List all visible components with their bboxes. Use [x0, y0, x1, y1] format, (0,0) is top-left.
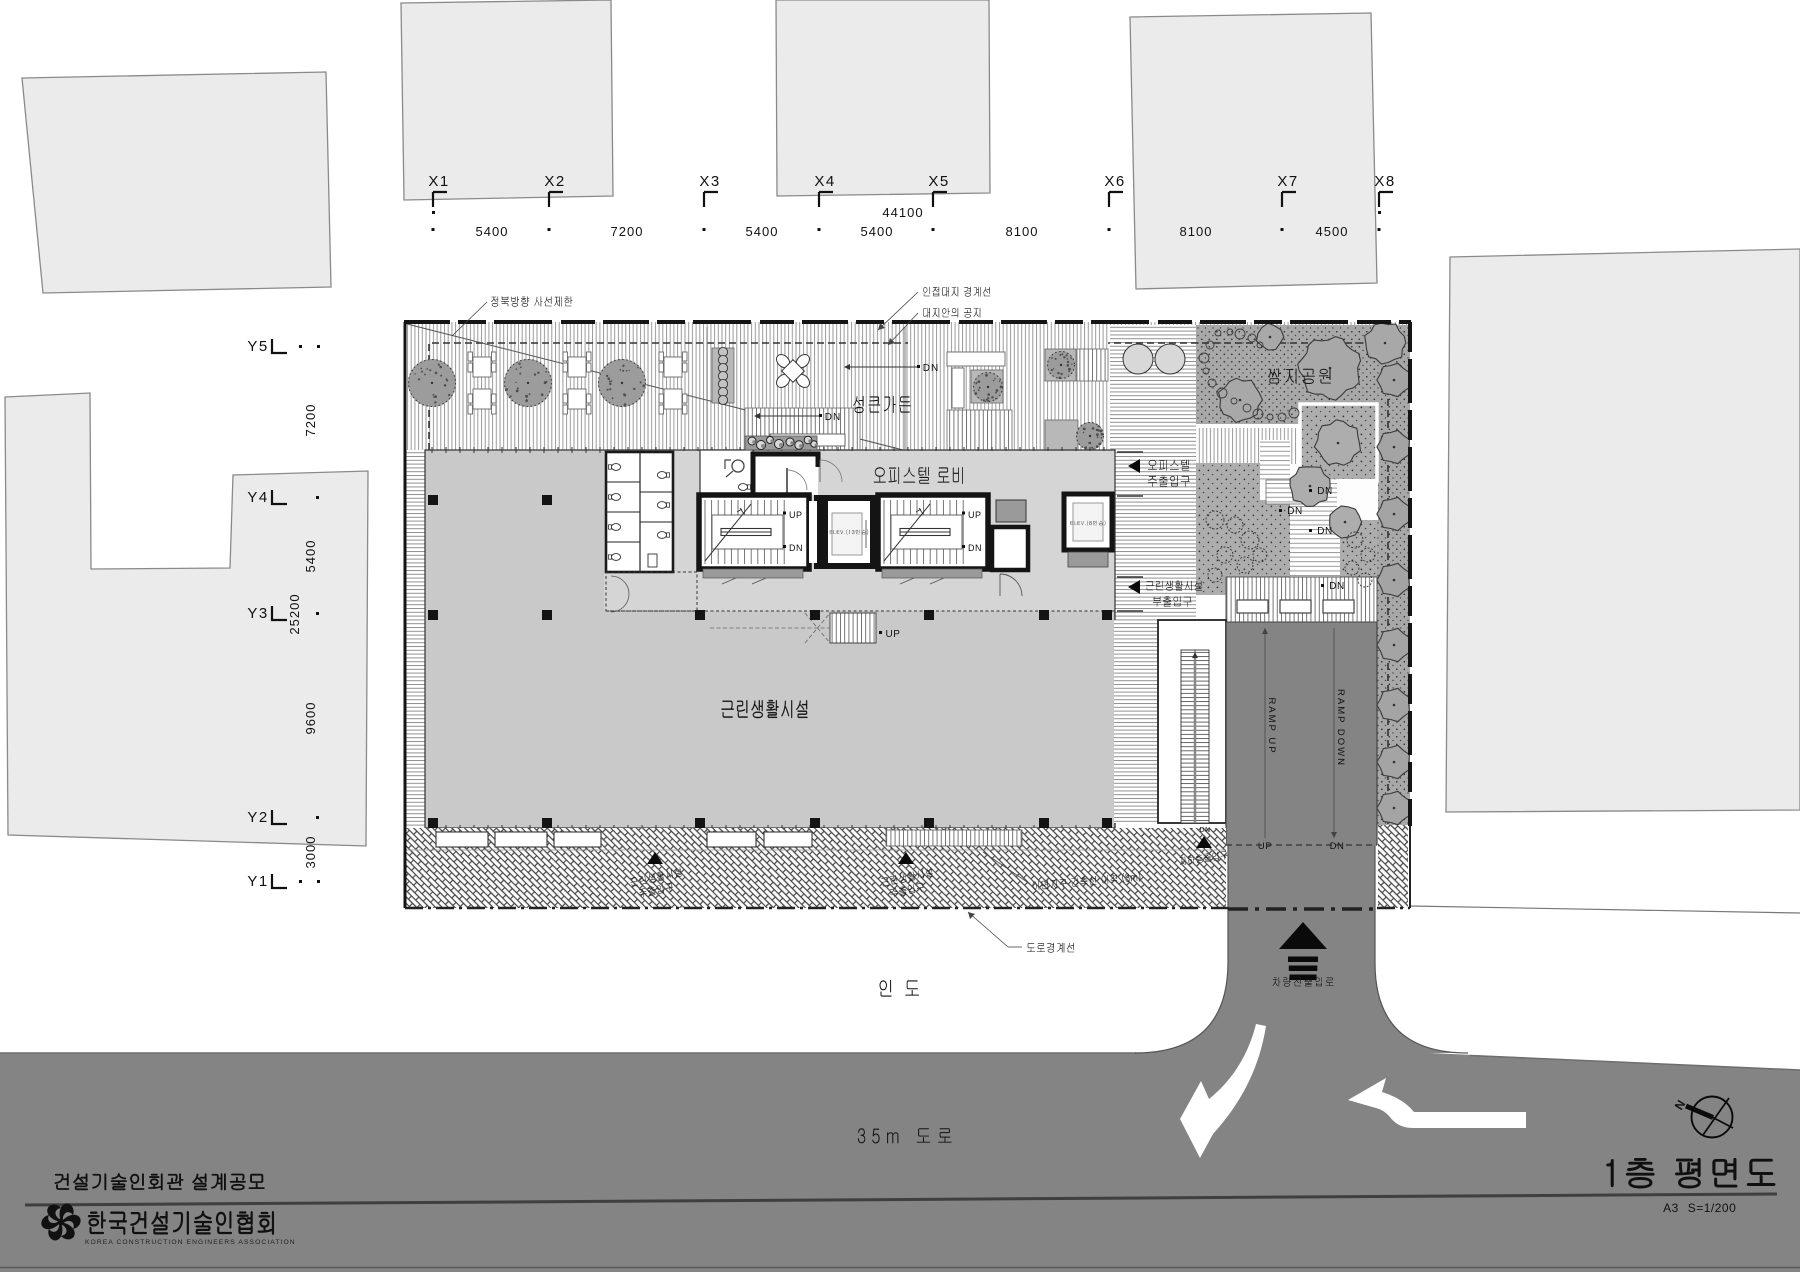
svg-text:DN: DN — [1317, 486, 1332, 497]
svg-text:44100: 44100 — [882, 205, 923, 220]
svg-text:DN: DN — [1330, 841, 1345, 852]
svg-text:UP: UP — [1258, 841, 1272, 852]
svg-text:X2: X2 — [544, 173, 565, 190]
svg-text:5400: 5400 — [476, 224, 509, 239]
svg-text:UP: UP — [886, 629, 901, 640]
svg-text:5400: 5400 — [746, 224, 779, 239]
svg-text:4500: 4500 — [1316, 224, 1349, 239]
svg-text:Y3: Y3 — [247, 605, 268, 622]
svg-text:UP: UP — [968, 510, 982, 520]
svg-text:3000: 3000 — [303, 836, 318, 869]
svg-text:8100: 8100 — [1180, 224, 1213, 239]
svg-text:DN: DN — [1329, 581, 1344, 592]
svg-text:DN: DN — [789, 543, 803, 553]
svg-text:RAMP UP: RAMP UP — [1266, 697, 1277, 754]
svg-text:DN: DN — [825, 412, 841, 423]
svg-text:7200: 7200 — [303, 404, 318, 437]
svg-text:X6: X6 — [1104, 173, 1125, 190]
svg-text:Y1: Y1 — [247, 873, 268, 890]
svg-text:X5: X5 — [928, 173, 949, 190]
svg-text:X7: X7 — [1277, 173, 1298, 190]
svg-text:DN: DN — [1287, 506, 1302, 517]
svg-text:8100: 8100 — [1006, 224, 1039, 239]
svg-text:X3: X3 — [699, 173, 720, 190]
svg-text:5400: 5400 — [303, 540, 318, 573]
svg-text:DN: DN — [923, 363, 939, 374]
svg-text:A3: A3 — [1663, 1201, 1679, 1215]
svg-text:Y2: Y2 — [247, 809, 268, 826]
svg-text:KOREA CONSTRUCTION ENGINEERS A: KOREA CONSTRUCTION ENGINEERS ASSOCIATION — [85, 1239, 296, 1246]
svg-text:UP: UP — [789, 510, 803, 520]
svg-text:9600: 9600 — [303, 702, 318, 735]
svg-text:DN: DN — [968, 543, 982, 553]
svg-text:X1: X1 — [428, 173, 449, 190]
svg-text:S=1/200: S=1/200 — [1688, 1201, 1737, 1215]
svg-text:7200: 7200 — [611, 224, 644, 239]
svg-text:X8: X8 — [1374, 173, 1395, 190]
svg-text:X4: X4 — [814, 173, 835, 190]
svg-text:Y5: Y5 — [247, 338, 268, 355]
svg-text:25200: 25200 — [287, 593, 302, 634]
svg-text:Y4: Y4 — [247, 489, 268, 506]
svg-text:RAMP DOWN: RAMP DOWN — [1335, 689, 1346, 767]
svg-text:5400: 5400 — [861, 224, 894, 239]
svg-text:DN: DN — [1317, 526, 1332, 537]
svg-text:DN: DN — [1199, 827, 1210, 834]
